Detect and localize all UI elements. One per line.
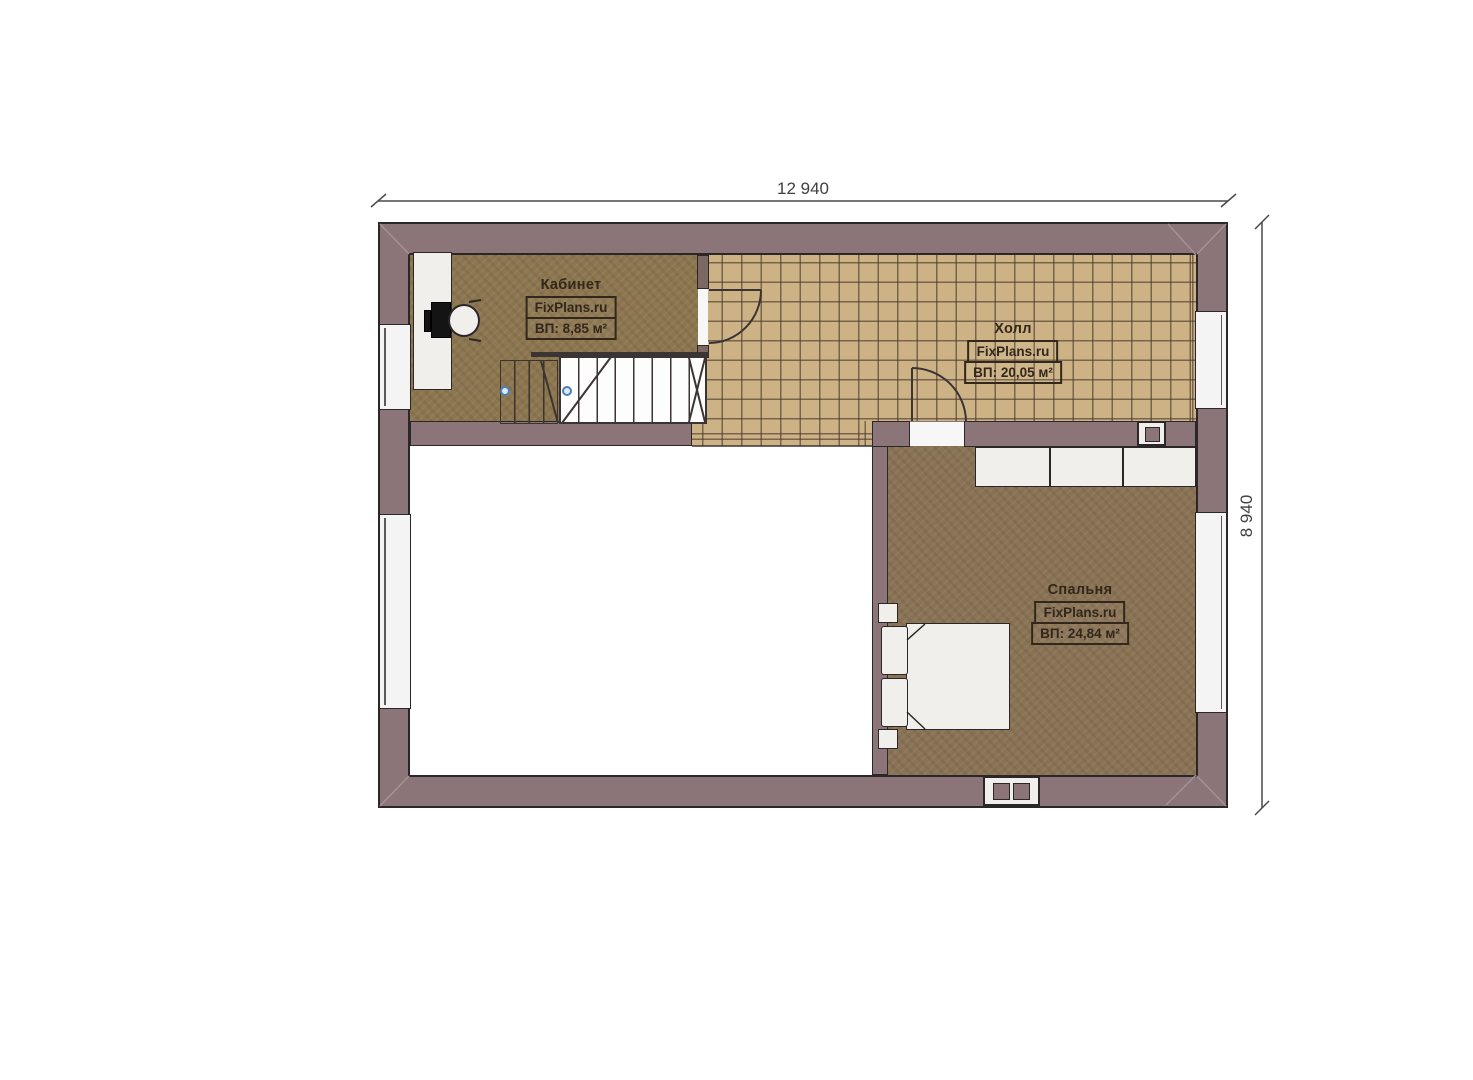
chimney-flue-right (1013, 783, 1030, 800)
dimension-width-label: 12 940 (777, 179, 829, 199)
room-name-office: Кабинет (541, 277, 602, 293)
hall-tile-floor (706, 255, 1196, 421)
dimension-height-label: 8 940 (1237, 495, 1257, 538)
brand-badge: FixPlans.ru (968, 340, 1059, 363)
floor-plan: Кабинет FixPlans.ru ВП: 8,85 м² Холл Fix… (0, 0, 1473, 1080)
bedroom-door-opening (910, 422, 964, 446)
bedroom-label-group: Спальня FixPlans.ru ВП: 24,84 м² (1031, 582, 1129, 645)
brand-badge: FixPlans.ru (526, 296, 617, 319)
stair-handrail-post (500, 386, 510, 396)
bottom-wall-chimney (983, 776, 1040, 806)
unfinished-room-floor (410, 446, 872, 775)
room-area-bedroom: ВП: 24,84 м² (1031, 622, 1129, 645)
room-name-hall: Холл (994, 321, 1032, 337)
office-label-group: Кабинет FixPlans.ru ВП: 8,85 м² (526, 277, 617, 340)
hall-label-group: Холл FixPlans.ru ВП: 20,05 м² (964, 321, 1062, 384)
desk-keyboard (424, 310, 431, 332)
nightstand-top (878, 603, 898, 623)
room-name-bedroom: Спальня (1048, 582, 1113, 598)
brand-badge: FixPlans.ru (1035, 601, 1126, 624)
bedroom-wall-vent (1137, 421, 1166, 446)
unfinished-room-window-left (379, 514, 411, 709)
office-window-left (379, 324, 411, 410)
nightstand-bottom (878, 729, 898, 749)
office-door-opening (698, 289, 708, 345)
window-glass-line (384, 328, 386, 406)
bed-mattress (906, 623, 1010, 730)
room-area-hall: ВП: 20,05 м² (964, 361, 1062, 384)
office-chair (448, 304, 480, 337)
hall-window-right (1195, 311, 1227, 409)
wardrobe-divider (1122, 448, 1124, 486)
bedroom-window-right (1195, 512, 1227, 713)
chimney-flue-left (993, 783, 1010, 800)
wardrobe-divider (1049, 448, 1051, 486)
window-glass-line (384, 518, 386, 705)
hall-tile-corridor (690, 421, 872, 446)
stair-handrail-post (562, 386, 572, 396)
bed-pillow-bottom (881, 678, 908, 727)
bed-pillow-top (881, 626, 908, 675)
vent-square (1145, 427, 1160, 442)
bedroom-top-wall-left-stub (872, 421, 910, 447)
wall-below-office (410, 421, 692, 446)
window-glass-line (1221, 516, 1223, 709)
room-area-office: ВП: 8,85 м² (526, 317, 616, 340)
stairs-main-run (559, 356, 707, 424)
office-hall-wall-upper (697, 255, 709, 289)
wardrobe (975, 447, 1196, 487)
window-glass-line (1221, 315, 1223, 405)
